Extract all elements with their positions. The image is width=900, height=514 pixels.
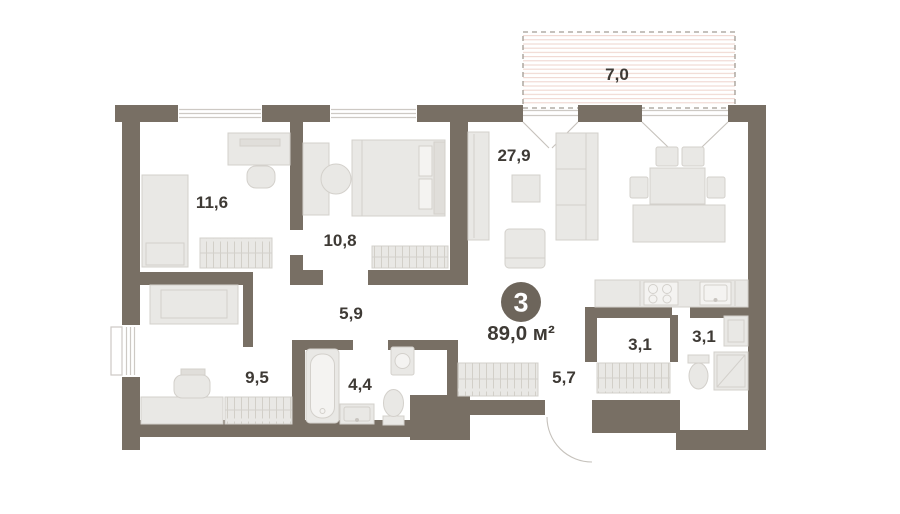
- chair: [174, 375, 210, 398]
- wall-segment: [748, 105, 766, 450]
- room-area-label-wc: 3,1: [692, 327, 716, 346]
- toilet: [383, 390, 404, 426]
- toilet: [688, 355, 709, 389]
- room-area-label-balcony: 7,0: [605, 65, 629, 84]
- rooms-count: 3: [513, 288, 528, 318]
- dining-table: [650, 168, 705, 204]
- window-left: [111, 327, 135, 375]
- balcony: 7,0: [523, 32, 735, 108]
- wardrobe-hangers: [225, 397, 292, 424]
- wall-segment: [450, 122, 468, 285]
- wardrobe-hangers: [372, 246, 448, 268]
- total-area: 89,0 м²: [487, 322, 555, 345]
- wall-segment: [676, 430, 766, 450]
- room-area-label-corridor: 5,9: [339, 304, 363, 323]
- balcony-hatch: [523, 32, 735, 106]
- dining-chair: [630, 177, 648, 198]
- armchair: [505, 229, 545, 268]
- window-top-middle: [331, 110, 416, 118]
- room-area-label-bathroom: 4,4: [348, 375, 372, 394]
- wall-segment: [670, 315, 678, 362]
- kitchen-counter: [595, 280, 748, 307]
- bed-headboard: [434, 142, 445, 214]
- wall-segment: [122, 105, 140, 325]
- room-area-label-living-kitchen: 27,9: [497, 146, 530, 165]
- sofa: [556, 133, 598, 240]
- monitor: [240, 139, 280, 146]
- monitor: [181, 369, 205, 375]
- wall-segment: [410, 395, 470, 440]
- dining-chair: [707, 177, 725, 198]
- bathroom-sink: [340, 404, 374, 424]
- wall-segment: [585, 318, 597, 362]
- room-area-label-hallway: 5,7: [552, 368, 576, 387]
- wall-segment: [585, 307, 672, 318]
- dresser-hangers: [200, 238, 272, 268]
- wardrobe-hangers: [458, 363, 538, 396]
- floor-plan-canvas: 7,0: [0, 0, 900, 514]
- window-top-left: [179, 110, 261, 118]
- room-area-label-bedroom-bottom-left: 9,5: [245, 368, 269, 387]
- wall-segment: [290, 122, 303, 230]
- pillow: [419, 146, 432, 176]
- wall-segment: [578, 105, 642, 122]
- wall-segment: [290, 255, 303, 285]
- wall-segment: [592, 400, 680, 433]
- dining-bench: [633, 205, 725, 242]
- floor-plan: 7,0: [0, 0, 900, 514]
- room-area-label-bedroom-top-left: 11,6: [196, 193, 228, 212]
- wall-segment: [447, 350, 458, 437]
- bathtub: [306, 349, 339, 423]
- wall-segment: [262, 105, 330, 122]
- coffee-table: [512, 175, 540, 202]
- entrance-door-swing: [547, 417, 592, 462]
- stove: [644, 282, 678, 305]
- kitchen-sink: [700, 282, 731, 305]
- wall-segment: [122, 377, 140, 450]
- furniture-bedroom-bottom-left: [141, 285, 292, 424]
- room-area-label-storage: 3,1: [628, 335, 652, 354]
- tv-cabinet: [468, 132, 489, 240]
- furniture-hallway: [458, 363, 538, 396]
- shower: [714, 352, 748, 390]
- wall-segment: [417, 105, 523, 122]
- room-area-label-bedroom-top-middle: 10,8: [323, 231, 356, 250]
- dining-set: [630, 147, 725, 242]
- balcony-window: [642, 111, 728, 148]
- wall-segment: [470, 400, 545, 415]
- wall-segment: [292, 340, 305, 437]
- wc-sink: [724, 316, 748, 346]
- pillow: [419, 179, 432, 209]
- wall-segment: [140, 272, 253, 285]
- wardrobe-hangers: [597, 363, 670, 393]
- furniture-storage: [597, 363, 670, 393]
- wall-segment: [243, 283, 253, 347]
- dining-chair: [682, 147, 704, 166]
- chair: [247, 166, 275, 188]
- wall-segment: [303, 270, 323, 285]
- cabinet: [146, 243, 184, 265]
- chair: [321, 164, 351, 194]
- desk: [228, 133, 290, 165]
- desk: [141, 397, 223, 424]
- dining-chair: [656, 147, 678, 166]
- apartment-badge: 3 89,0 м²: [487, 282, 555, 345]
- washing-machine: [391, 347, 414, 375]
